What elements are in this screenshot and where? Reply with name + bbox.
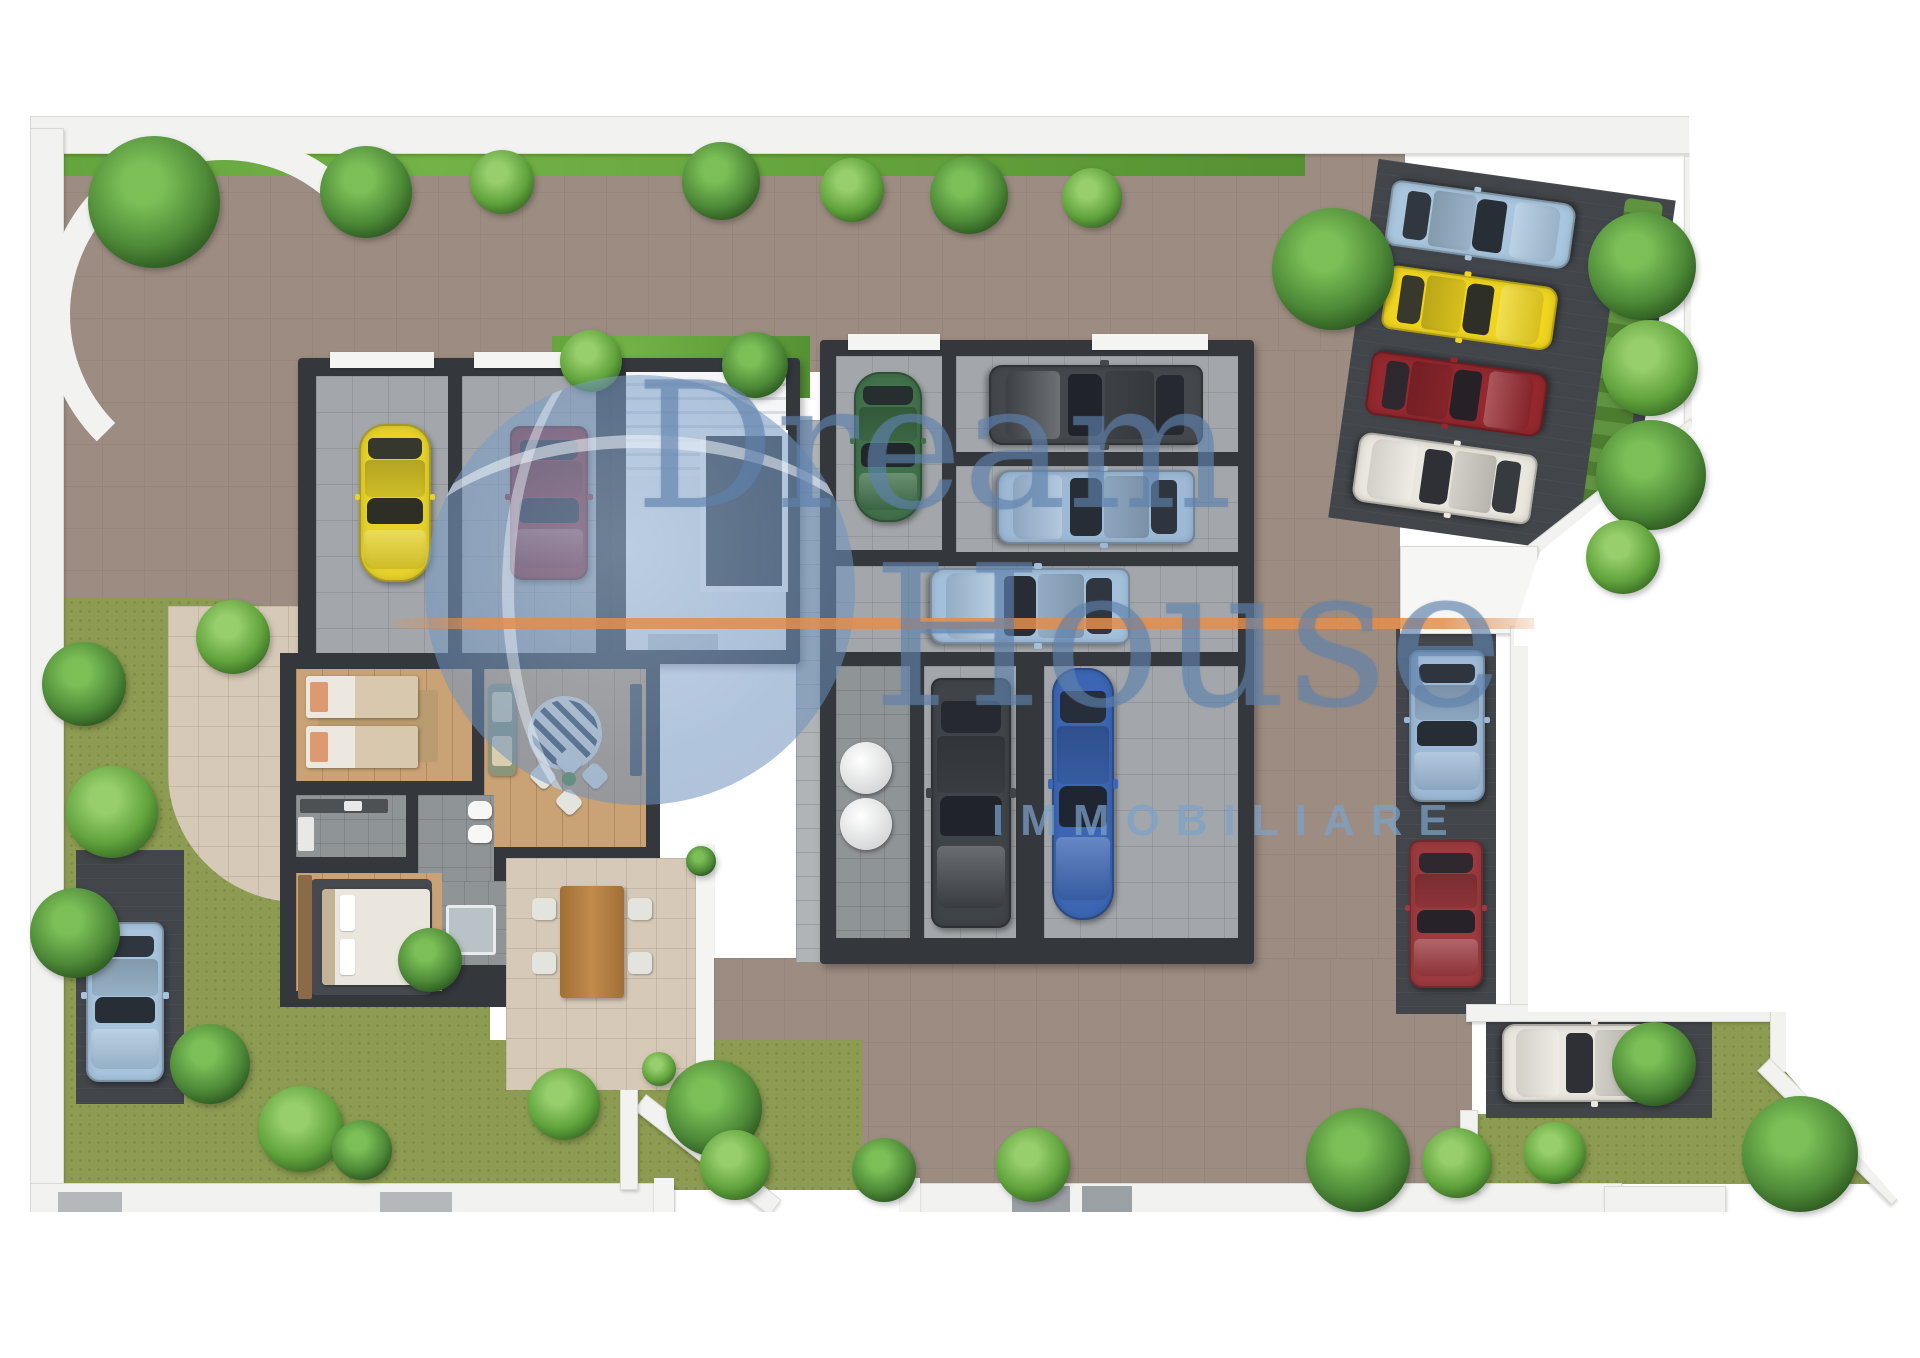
perimeter-wall-east-strip (1510, 626, 1530, 1018)
double-bed-pillow-2 (340, 939, 355, 975)
car-lightblue-sedan (997, 470, 1195, 544)
stair-void (700, 430, 788, 592)
tree (1602, 320, 1698, 416)
car-lightblue-suv (930, 568, 1130, 644)
tree (196, 600, 270, 674)
tree (66, 766, 158, 858)
toilet (468, 801, 492, 819)
tree (332, 1120, 392, 1180)
bidet (468, 825, 492, 843)
stair-landing-threshold (648, 634, 718, 650)
garage-door-4 (1092, 334, 1208, 350)
tree (170, 1024, 250, 1104)
tree (1062, 168, 1122, 228)
floor-plan-canvas: Dream House IMMOBILIARE (0, 0, 1920, 1358)
tree (1586, 520, 1660, 594)
water-tank-2 (840, 798, 892, 850)
patio-chair-2 (532, 952, 556, 974)
tree (42, 642, 126, 726)
tree (1524, 1122, 1586, 1184)
outside-mask-top (0, 0, 1920, 116)
tree (1306, 1108, 1410, 1212)
tree (930, 156, 1008, 234)
tree (30, 888, 120, 978)
tree (682, 142, 760, 220)
double-bed-headboard (322, 889, 335, 985)
tree (1588, 212, 1696, 320)
patio-chair-4 (628, 952, 652, 974)
tree (852, 1138, 916, 1202)
sofa-cushion-2 (492, 736, 512, 766)
car-lightblue-east-strip (1409, 650, 1485, 802)
patio-low-wall (696, 844, 714, 1090)
tree (1742, 1096, 1858, 1212)
tree (528, 1068, 600, 1140)
kitchen-cabinet (298, 817, 314, 851)
tree (1272, 208, 1394, 330)
tree (996, 1128, 1070, 1202)
car-darkred-angled (1364, 350, 1549, 438)
dining-plant (562, 772, 576, 786)
wall-se-bottom (1604, 1186, 1726, 1214)
outside-mask-bottom (0, 1212, 1920, 1358)
tree (820, 158, 884, 222)
car-yellow-classic (359, 424, 431, 582)
tree (470, 150, 534, 214)
tree (1612, 1022, 1696, 1106)
tree (398, 928, 462, 992)
single-bed-1 (306, 676, 418, 718)
car-white-angled (1351, 431, 1539, 525)
tree (1422, 1128, 1492, 1198)
double-bed-pillow-1 (340, 895, 355, 931)
car-yellow-angled (1380, 264, 1559, 351)
car-darkgray-suv (931, 678, 1011, 928)
sofa-cushion-1 (492, 692, 512, 722)
tv-cabinet (630, 684, 642, 776)
bush (686, 846, 716, 876)
car-dark-sports (989, 365, 1203, 445)
kitchen-sink (344, 801, 362, 811)
tree (560, 330, 622, 392)
patio-chair-3 (628, 898, 652, 920)
water-tank-1 (840, 742, 892, 794)
tree (320, 146, 412, 238)
car-blue-classic (1052, 668, 1114, 920)
garage-door-1 (330, 352, 434, 368)
outside-mask-east (1528, 640, 1920, 1012)
tree (722, 332, 788, 398)
stairwell-core (612, 358, 800, 664)
outside-mask-west (0, 0, 30, 1358)
car-green-classic (854, 372, 922, 522)
tree (258, 1086, 344, 1172)
perimeter-wall-bottom-west (30, 1183, 674, 1215)
car-darkred-sedan (510, 426, 588, 580)
wardrobe (298, 875, 312, 999)
patio-chair-1 (532, 898, 556, 920)
tree (1596, 420, 1706, 530)
car-darkred-east-strip (1409, 840, 1483, 988)
garage-door-3 (848, 334, 940, 350)
car-lightblue-suv-angled (1384, 179, 1577, 270)
patio-table (560, 886, 624, 998)
single-bed-2 (306, 726, 418, 768)
tree (700, 1130, 770, 1200)
tree (88, 136, 220, 268)
bush (642, 1052, 676, 1086)
